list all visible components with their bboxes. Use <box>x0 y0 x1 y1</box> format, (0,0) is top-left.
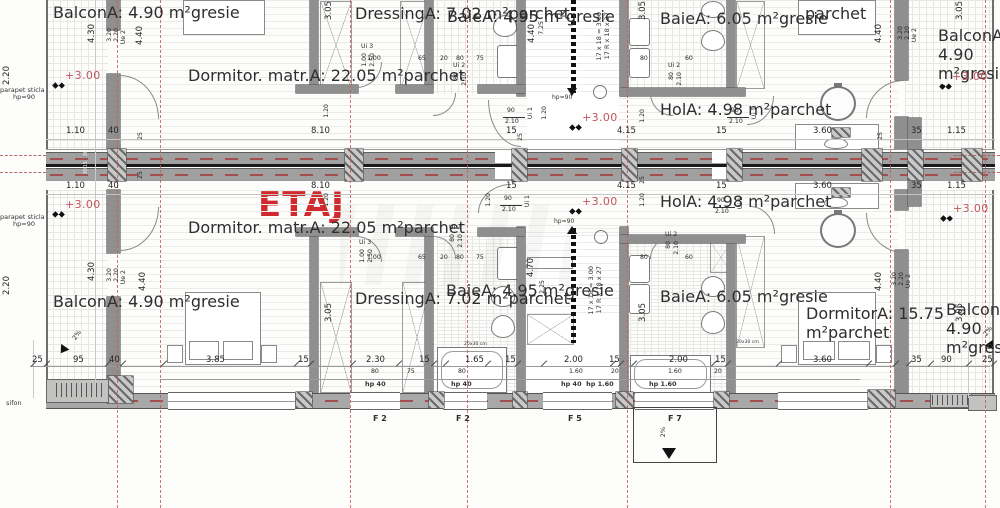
interior-wall <box>478 85 525 93</box>
door-code: Ui 2 <box>449 225 461 232</box>
note-label: sifon <box>6 400 22 407</box>
dimension-label: 3.05 <box>639 1 648 20</box>
dimension-label: 15 <box>298 356 309 365</box>
door-width: 1.00 <box>362 53 369 67</box>
dim-line <box>46 194 995 195</box>
dimension-label: Ue 2 <box>906 274 913 288</box>
interior-wall <box>620 235 745 243</box>
dimension-label: 80 <box>640 56 648 63</box>
dimension-label: 80 <box>371 369 379 376</box>
dimension-label: 75 <box>407 369 415 376</box>
door-height: 2.10 <box>458 234 465 248</box>
level-label: +3.00 <box>953 203 989 215</box>
dimension-label: 1.20 <box>542 106 549 120</box>
dimension-label: 4.30 <box>88 24 97 43</box>
counter-grill <box>832 128 850 137</box>
dimension-label: 1.20 <box>486 193 493 207</box>
door-height: 2.50 <box>368 249 375 263</box>
dimension-label: 15 <box>84 161 89 167</box>
room-label: BalconA: 4.90 m²gresie <box>53 292 240 311</box>
pillar <box>616 392 633 408</box>
dimension-label: 1.65 <box>465 356 484 365</box>
door-code: Ui 1 <box>738 197 745 209</box>
room-name: Hol <box>660 192 686 211</box>
dimension-label: Ue 2 <box>121 30 128 44</box>
interior-wall <box>620 88 745 96</box>
dimension-label: 75 <box>476 56 484 63</box>
door-width: 90 <box>731 108 739 115</box>
floor-plan: ETAJ BalconA: 4.90 m²gresieDormitor. mat… <box>0 0 1000 508</box>
dimension-label: 3.05 <box>325 303 334 322</box>
exterior-wall <box>895 117 908 149</box>
level-label: +3.00 <box>582 112 618 124</box>
dimension-label: Ue 2 <box>121 270 128 284</box>
interior-wall <box>310 236 318 393</box>
room-name: Dormitor <box>806 304 877 323</box>
dimension-label: 40 <box>109 356 120 365</box>
column-marker <box>594 230 608 244</box>
door-code: Ui 2 <box>453 63 465 70</box>
axis-line-v <box>890 0 891 508</box>
pillar <box>513 392 527 408</box>
level-label: +3.00 <box>65 199 101 211</box>
level-label: +3.00 <box>582 196 618 208</box>
room-area: A: 6.05 m² <box>695 287 779 306</box>
dimension-label: 3.60 <box>813 182 832 191</box>
dimension-label: 80 <box>458 369 466 376</box>
note-label: hp 40 <box>451 381 472 388</box>
room-label: Dormitor. matr.A: 22.05 m²parchet <box>188 66 465 85</box>
dimension-label: 3.60 <box>813 127 832 136</box>
dimension-label: 8.10 <box>311 182 330 191</box>
pillar <box>345 149 363 181</box>
window-label: F 2 <box>456 415 470 423</box>
dimension-label: 2.00 <box>564 356 583 365</box>
door-width: 80 <box>454 72 461 80</box>
slope-arrow <box>567 226 577 234</box>
dimension-label: 25 <box>32 356 43 365</box>
room-area: A: 4.90 m² <box>107 3 191 22</box>
balcony-glazing <box>46 0 48 149</box>
dim-guide <box>33 340 34 398</box>
toilet <box>491 315 515 338</box>
door-width: 80 <box>669 72 676 80</box>
dimension-label: 90 <box>941 356 952 365</box>
dimension-label: 3.05 <box>956 303 965 322</box>
dimension-label: 65 <box>418 56 426 63</box>
room-label: parchet <box>805 4 866 23</box>
note-label: hp=90 <box>554 219 574 225</box>
dimension-label: 65 <box>418 255 426 262</box>
room-label: BaieA: 6.05 m²gresie <box>660 9 828 28</box>
note-label: hp 1.60 <box>649 381 677 388</box>
door-height: 2.50 <box>370 53 377 67</box>
note-label: 17 x 18 = 3.00 <box>588 266 595 315</box>
window-label: F 2 <box>373 415 387 423</box>
dimension-label: 4.30 <box>88 262 97 281</box>
interior-wall <box>727 236 735 393</box>
dimension-label: 30 <box>84 168 89 174</box>
door-code: Ui 1 <box>752 107 759 119</box>
door-height: 2.10 <box>715 209 729 216</box>
dimension-label: 95 <box>73 356 84 365</box>
toilet <box>701 311 725 334</box>
dimension-label: 7.25 <box>539 21 546 35</box>
dim-line <box>160 379 860 380</box>
dimension-label: 25 <box>878 132 885 140</box>
exterior-wall <box>107 190 120 253</box>
dimension-label: 3.85 <box>206 356 225 365</box>
door-code: Ui 1 <box>525 195 532 207</box>
dimension-label: 2.30 <box>366 356 385 365</box>
dimension-label: 15 <box>715 356 726 365</box>
door-width: 90 <box>717 198 725 205</box>
pillar <box>512 149 527 181</box>
level-label: +3.00 <box>952 71 988 83</box>
washbasin <box>497 45 519 78</box>
door-width: 90 <box>504 196 512 203</box>
room-finish: gresie <box>191 292 240 311</box>
room-name: Hol <box>660 100 686 119</box>
note-label: 20x30 cm <box>464 343 487 348</box>
dimension-label: 3.05 <box>956 1 965 20</box>
window <box>168 392 295 410</box>
dimension-label: 25 <box>138 171 145 179</box>
balcony-railing <box>932 395 968 405</box>
nightstand <box>781 345 797 363</box>
dimension-label: 15 <box>505 356 516 365</box>
note-label: 17 R x 18 x 27 <box>596 266 603 313</box>
dimension-label: 75 <box>476 255 484 262</box>
balcony-railing <box>56 383 104 397</box>
dimension-label: 1.15 <box>947 127 966 136</box>
room-finish: gresie <box>191 3 240 22</box>
window <box>543 392 612 410</box>
dimension-label: 15 <box>716 182 727 191</box>
door-height: 2.10 <box>677 72 684 86</box>
door-code: Ui 3 <box>359 240 371 247</box>
dimension-label: 1.20 <box>324 193 331 207</box>
room-name: Baie <box>660 287 695 306</box>
dimension-label: 15 <box>506 182 517 191</box>
dimension-label: 80 <box>640 255 648 262</box>
room-name: Dressing <box>355 4 425 23</box>
door-height: 2.10 <box>502 207 516 214</box>
dimension-label: 4.40 <box>136 26 145 45</box>
note-label: hp 40 <box>365 381 386 388</box>
room-label: Dormitor. matr.A: 22.05 m²parchet <box>188 218 465 237</box>
nightstand <box>167 345 183 363</box>
dimension-label: 40 <box>108 127 119 136</box>
room-name: Dormitor. matr. <box>188 66 310 85</box>
dimension-label: 2.20 <box>3 66 12 85</box>
dimension-label: 15 <box>419 356 430 365</box>
wardrobe <box>320 282 352 393</box>
dimension-label: 1.10 <box>66 182 85 191</box>
dimension-label: 1.20 <box>640 193 647 207</box>
dimension-label: 25 <box>640 176 647 184</box>
door-code: Ui 3 <box>361 44 373 51</box>
note-label: 17 R x 18 x 27 <box>604 12 611 59</box>
axis-line-h <box>0 155 46 156</box>
pillar <box>296 392 312 408</box>
door-width: 90 <box>507 108 515 115</box>
dimension-label: 20 <box>714 369 722 376</box>
room-name: Baie <box>660 9 695 28</box>
dimension-label: 35 <box>911 356 922 365</box>
axis-line-v <box>627 0 628 508</box>
washbasin <box>629 18 650 46</box>
column-marker <box>593 85 607 99</box>
dimension-label: 1.20 <box>324 104 331 118</box>
room-finish: parchet <box>770 100 831 119</box>
level-label: +3.00 <box>65 70 101 82</box>
interior-wall <box>396 85 433 93</box>
balcony-step <box>968 395 997 411</box>
dimension-label: 4.70 <box>527 258 536 277</box>
door-width: 80 <box>666 241 673 249</box>
room-label: BalconA: 4.90 m²gresie <box>53 3 240 22</box>
axis-line-h <box>954 172 1000 173</box>
exterior-wall <box>895 0 908 80</box>
dimension-label: 2.20 <box>3 276 12 295</box>
dimension-label: 2.25 <box>540 280 547 294</box>
exterior-wall <box>895 190 908 210</box>
pillar <box>429 392 444 408</box>
room-area: A: 4.90 m² <box>107 292 191 311</box>
bathtub <box>437 347 507 393</box>
dimension-label: 3.60 <box>813 356 832 365</box>
room-name: Balcon <box>53 3 107 22</box>
window-label: F 7 <box>668 415 682 423</box>
dimension-label: 4.40 <box>528 24 537 43</box>
dimension-label: 4.15 <box>617 182 636 191</box>
dimension-label: 4.15 <box>617 127 636 136</box>
slope-arrow <box>662 448 676 459</box>
exterior-wall <box>107 74 120 149</box>
dimension-label: 25 <box>982 356 993 365</box>
dimension-label: 8.10 <box>311 127 330 136</box>
pillar <box>908 150 923 180</box>
room-finish: parchet <box>770 192 831 211</box>
door-height: 2.10 <box>729 119 743 126</box>
dimension-label: 20 <box>440 255 448 262</box>
pillar <box>862 149 882 181</box>
note-label: hp=90 <box>13 221 35 228</box>
room-name: Dressing <box>355 289 425 308</box>
room-label: HolA: 4.98 m²parchet <box>660 192 831 211</box>
note-label: hp 40 hp 1.60 <box>561 381 614 388</box>
dimension-label: 3.05 <box>639 303 648 322</box>
room-area: A: 22.05 m² <box>310 66 404 85</box>
dimension-label: 20 <box>440 56 448 63</box>
dimension-label: 60 <box>685 56 693 63</box>
room-area: A: 6.05 m² <box>695 9 779 28</box>
room-area: A: 4.95 m² <box>482 7 566 26</box>
window <box>350 392 400 410</box>
dimension-label: 1.60 <box>569 369 583 376</box>
dimension-label: 20 <box>611 369 619 376</box>
dimension-label: 3.05 <box>325 1 334 20</box>
dimension-label: 1.20 <box>640 109 647 123</box>
note-label: 20x30 cm <box>736 341 759 346</box>
pillow <box>223 341 253 360</box>
dimension-label: 1.15 <box>947 182 966 191</box>
room-finish: parchet <box>805 4 866 23</box>
dimension-label: 4.40 <box>875 24 884 43</box>
room-name: Balcon <box>53 292 107 311</box>
balcony-glazing <box>992 190 994 398</box>
door-code: Ui 2 <box>665 232 677 239</box>
room-name: Baie <box>446 281 481 300</box>
room-name: Balcon <box>938 26 992 45</box>
dimension-label: 4.40 <box>875 272 884 291</box>
axis-line-v <box>117 0 118 508</box>
window-label: F 5 <box>568 415 582 423</box>
window <box>778 392 868 410</box>
dimension-label: 25 <box>518 133 525 141</box>
interior-wall <box>296 85 358 93</box>
dimension-label: 1.60 <box>668 369 682 376</box>
room-area: A: 22.05 m² <box>310 218 404 237</box>
room-finish: parchet <box>828 323 889 342</box>
pillar <box>714 392 729 408</box>
dimension-label: 25 <box>138 132 145 140</box>
note-label: hp=90 <box>552 95 572 101</box>
dimension-label: 15 <box>506 127 517 136</box>
room-name: Dormitor. matr. <box>188 218 310 237</box>
dimension-label: 35 <box>911 127 922 136</box>
door-height: 2.10 <box>674 241 681 255</box>
toilet <box>701 30 725 51</box>
window <box>443 392 487 410</box>
dimension-label: 15 <box>716 127 727 136</box>
dimension-label: 30 <box>84 150 89 156</box>
dim-line <box>30 366 990 367</box>
dimension-label: 40 <box>108 182 119 191</box>
nightstand <box>261 345 277 363</box>
axis-line-h <box>954 155 1000 156</box>
dimension-label: 2.00 <box>669 356 688 365</box>
axis-line-v <box>160 0 161 508</box>
pillar <box>622 149 637 181</box>
dimension-label: Ue 2 <box>912 28 919 42</box>
pot <box>820 213 856 248</box>
dimension-label: 1.10 <box>66 127 85 136</box>
note-label: hp=90 <box>13 94 35 101</box>
dimension-label: 80 <box>456 255 464 262</box>
pillar <box>107 376 133 403</box>
note-label: 17 x 18 = 3.00 <box>596 12 603 61</box>
door-height: 2.10 <box>462 72 469 86</box>
dimension-label: 60 <box>685 255 693 262</box>
dimension-label: 4.40 <box>139 272 148 291</box>
counter-grill <box>832 188 850 197</box>
pillar <box>962 149 982 181</box>
room-label: BaieA: 6.05 m²gresie <box>660 287 828 306</box>
door-code: Ui 1 <box>528 107 535 119</box>
pillar <box>727 149 742 181</box>
door-height: 2.10 <box>505 119 519 126</box>
pillow <box>838 341 870 360</box>
dimension-label: 35 <box>911 182 922 191</box>
stair-flight-cross <box>527 314 574 345</box>
room-name: Baie <box>447 7 482 26</box>
note-label: 2% <box>660 427 667 437</box>
washbasin <box>629 48 650 78</box>
door-width: 1.00 <box>360 249 367 263</box>
dimension-label: 15 <box>609 356 620 365</box>
axis-line-h <box>0 172 46 173</box>
door-code: Ui 2 <box>668 63 680 70</box>
room-area: A: 4.95 m² <box>481 281 565 300</box>
door-width: 80 <box>450 234 457 242</box>
